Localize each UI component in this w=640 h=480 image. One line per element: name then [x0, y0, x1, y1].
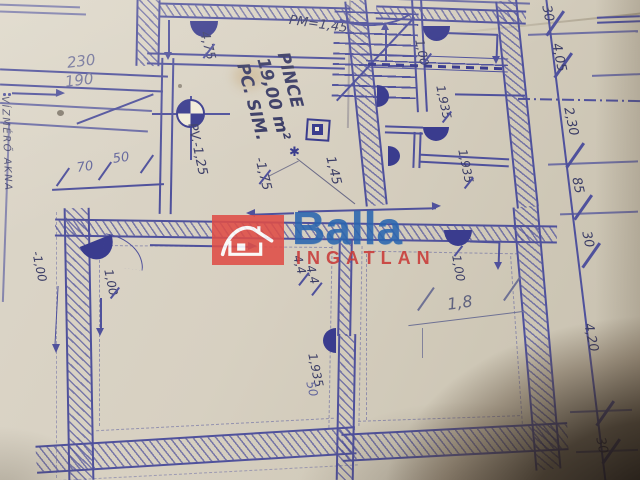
- level-label-pv: PV.-1,25: [184, 122, 209, 177]
- wall-tr-right: [495, 0, 539, 209]
- logo-box: [212, 215, 284, 265]
- logo-brand: Balla: [292, 205, 402, 251]
- dim-arrow-line: [385, 28, 387, 62]
- guide-line: [570, 409, 632, 413]
- arrow-down-icon: [52, 344, 60, 353]
- dim-label-1935: 1,935: [433, 84, 453, 120]
- dim-arrow-line: [12, 92, 58, 95]
- paper-speck: [178, 84, 182, 88]
- dim-arrow-line: [470, 240, 500, 243]
- chain-label: 30: [538, 4, 555, 23]
- wall-pince-left: [159, 58, 175, 214]
- dim-dot: [3, 93, 6, 96]
- column-symbol-core: [315, 127, 319, 131]
- pencil-tick: [417, 287, 435, 311]
- dim-label-70: 70: [76, 160, 94, 176]
- dim-label-50: 50: [303, 380, 319, 398]
- chain-label: 4,05: [548, 42, 568, 73]
- dim-tick: [595, 400, 614, 426]
- wall-line: [455, 93, 525, 96]
- pencil-dim-line: [408, 311, 523, 326]
- dim-tick: [140, 154, 154, 173]
- dim-arrow-line: [100, 298, 102, 330]
- dim-tick: [98, 161, 112, 180]
- guide-line: [528, 30, 638, 35]
- wall-dash-line: [358, 246, 362, 426]
- axis-dashdot-line: [518, 98, 640, 102]
- floorplan-photo: 230 190 PV.-1,25 PINCE 19,00 m² PC. SIM.…: [0, 0, 640, 480]
- wall-line: [597, 15, 640, 23]
- chain-label: 85: [568, 176, 585, 195]
- leader-line: [268, 161, 299, 177]
- arrow-down-icon: [96, 328, 104, 336]
- chain-label: 30: [592, 436, 609, 455]
- dim-label-18: 1,8: [446, 292, 474, 313]
- arrow-down-icon: [492, 56, 500, 64]
- arrow-down-icon: [494, 262, 502, 270]
- level-label-100: -1,00: [29, 250, 48, 283]
- door-swing-icon: [323, 328, 336, 353]
- watermark-logo: Balla INGATLAN: [212, 205, 452, 271]
- guide-line: [548, 160, 638, 165]
- door-swing-icon: [423, 127, 449, 141]
- dim-line: [52, 183, 164, 190]
- logo-subtitle: INGATLAN: [296, 248, 436, 269]
- dim-arrow-line: [168, 20, 170, 54]
- arrow-right-icon: [56, 89, 65, 97]
- room-dash-line: [366, 254, 367, 420]
- dim-label-230: 230: [66, 52, 96, 72]
- door-arc: [101, 233, 147, 271]
- paper-speck: [57, 110, 64, 116]
- dim-tick: [573, 194, 592, 220]
- room-dash-line: [99, 250, 100, 426]
- margin-note: VÍZMÉRŐ AKNA: [0, 96, 13, 192]
- arrow-up-icon: [381, 22, 389, 30]
- door-swing-icon: [388, 146, 400, 166]
- wall-line: [0, 4, 80, 8]
- guide-line: [592, 73, 640, 76]
- wall-line: [0, 10, 86, 15]
- room-dash-line: [358, 415, 520, 422]
- chain-label: 4,20: [580, 322, 600, 353]
- house-icon: [219, 218, 277, 262]
- pencil-line: [422, 328, 423, 358]
- dim-label-190: 190: [64, 71, 94, 91]
- dim-tick: [56, 167, 70, 186]
- door-swing-icon: [423, 26, 450, 41]
- dim-label-50: 50: [112, 151, 130, 167]
- dim-arrow-line: [448, 32, 498, 35]
- chain-label: 30: [578, 230, 595, 249]
- wall-line: [0, 121, 148, 132]
